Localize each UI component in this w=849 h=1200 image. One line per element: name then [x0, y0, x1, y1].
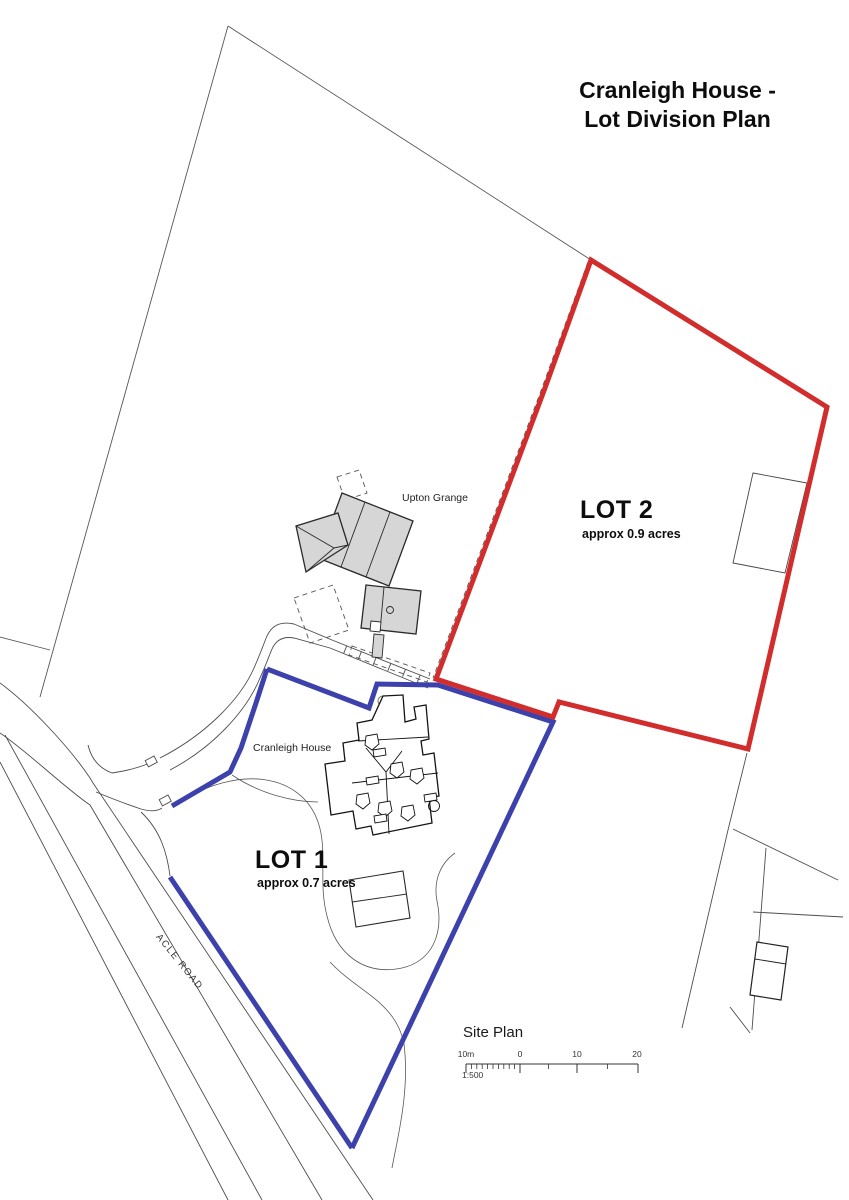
upton-grange-building: [296, 493, 421, 658]
cranleigh-house-label: Cranleigh House: [253, 742, 331, 754]
dashed-outlines: [294, 262, 588, 682]
upton-grange-label: Upton Grange: [402, 492, 468, 504]
lot2-area-label: approx 0.9 acres: [582, 527, 681, 541]
lot2-label: LOT 2: [580, 496, 653, 525]
scale-tick-10: 10: [565, 1049, 589, 1059]
site-boundary-lines: [0, 26, 591, 697]
lot2-side-building: [733, 473, 807, 573]
lot1-outbuilding: [349, 871, 410, 927]
entrance-detail: [88, 745, 171, 876]
lot1-label: LOT 1: [255, 846, 328, 875]
scale-ratio-label: 1:500: [462, 1070, 483, 1080]
site-plan-drawing: [0, 0, 849, 1200]
garden-curves: [175, 775, 455, 1168]
plan-title-line1: Cranleigh House -: [560, 76, 795, 105]
plan-title-line2: Lot Division Plan: [560, 105, 795, 134]
lot1-area-label: approx 0.7 acres: [257, 876, 356, 890]
plan-title: Cranleigh House - Lot Division Plan: [560, 76, 795, 134]
site-plan-caption: Site Plan: [463, 1024, 523, 1041]
scale-bar: [466, 1064, 638, 1073]
scale-tick-0: 0: [508, 1049, 532, 1059]
scale-tick-10m: 10m: [454, 1049, 478, 1059]
cranleigh-house-building: [325, 695, 440, 835]
scale-tick-20: 20: [625, 1049, 649, 1059]
lot-division-plan-page: { "title": {"line1": "Cranleigh House -"…: [0, 0, 849, 1200]
neighbour-lines: [682, 753, 843, 1033]
